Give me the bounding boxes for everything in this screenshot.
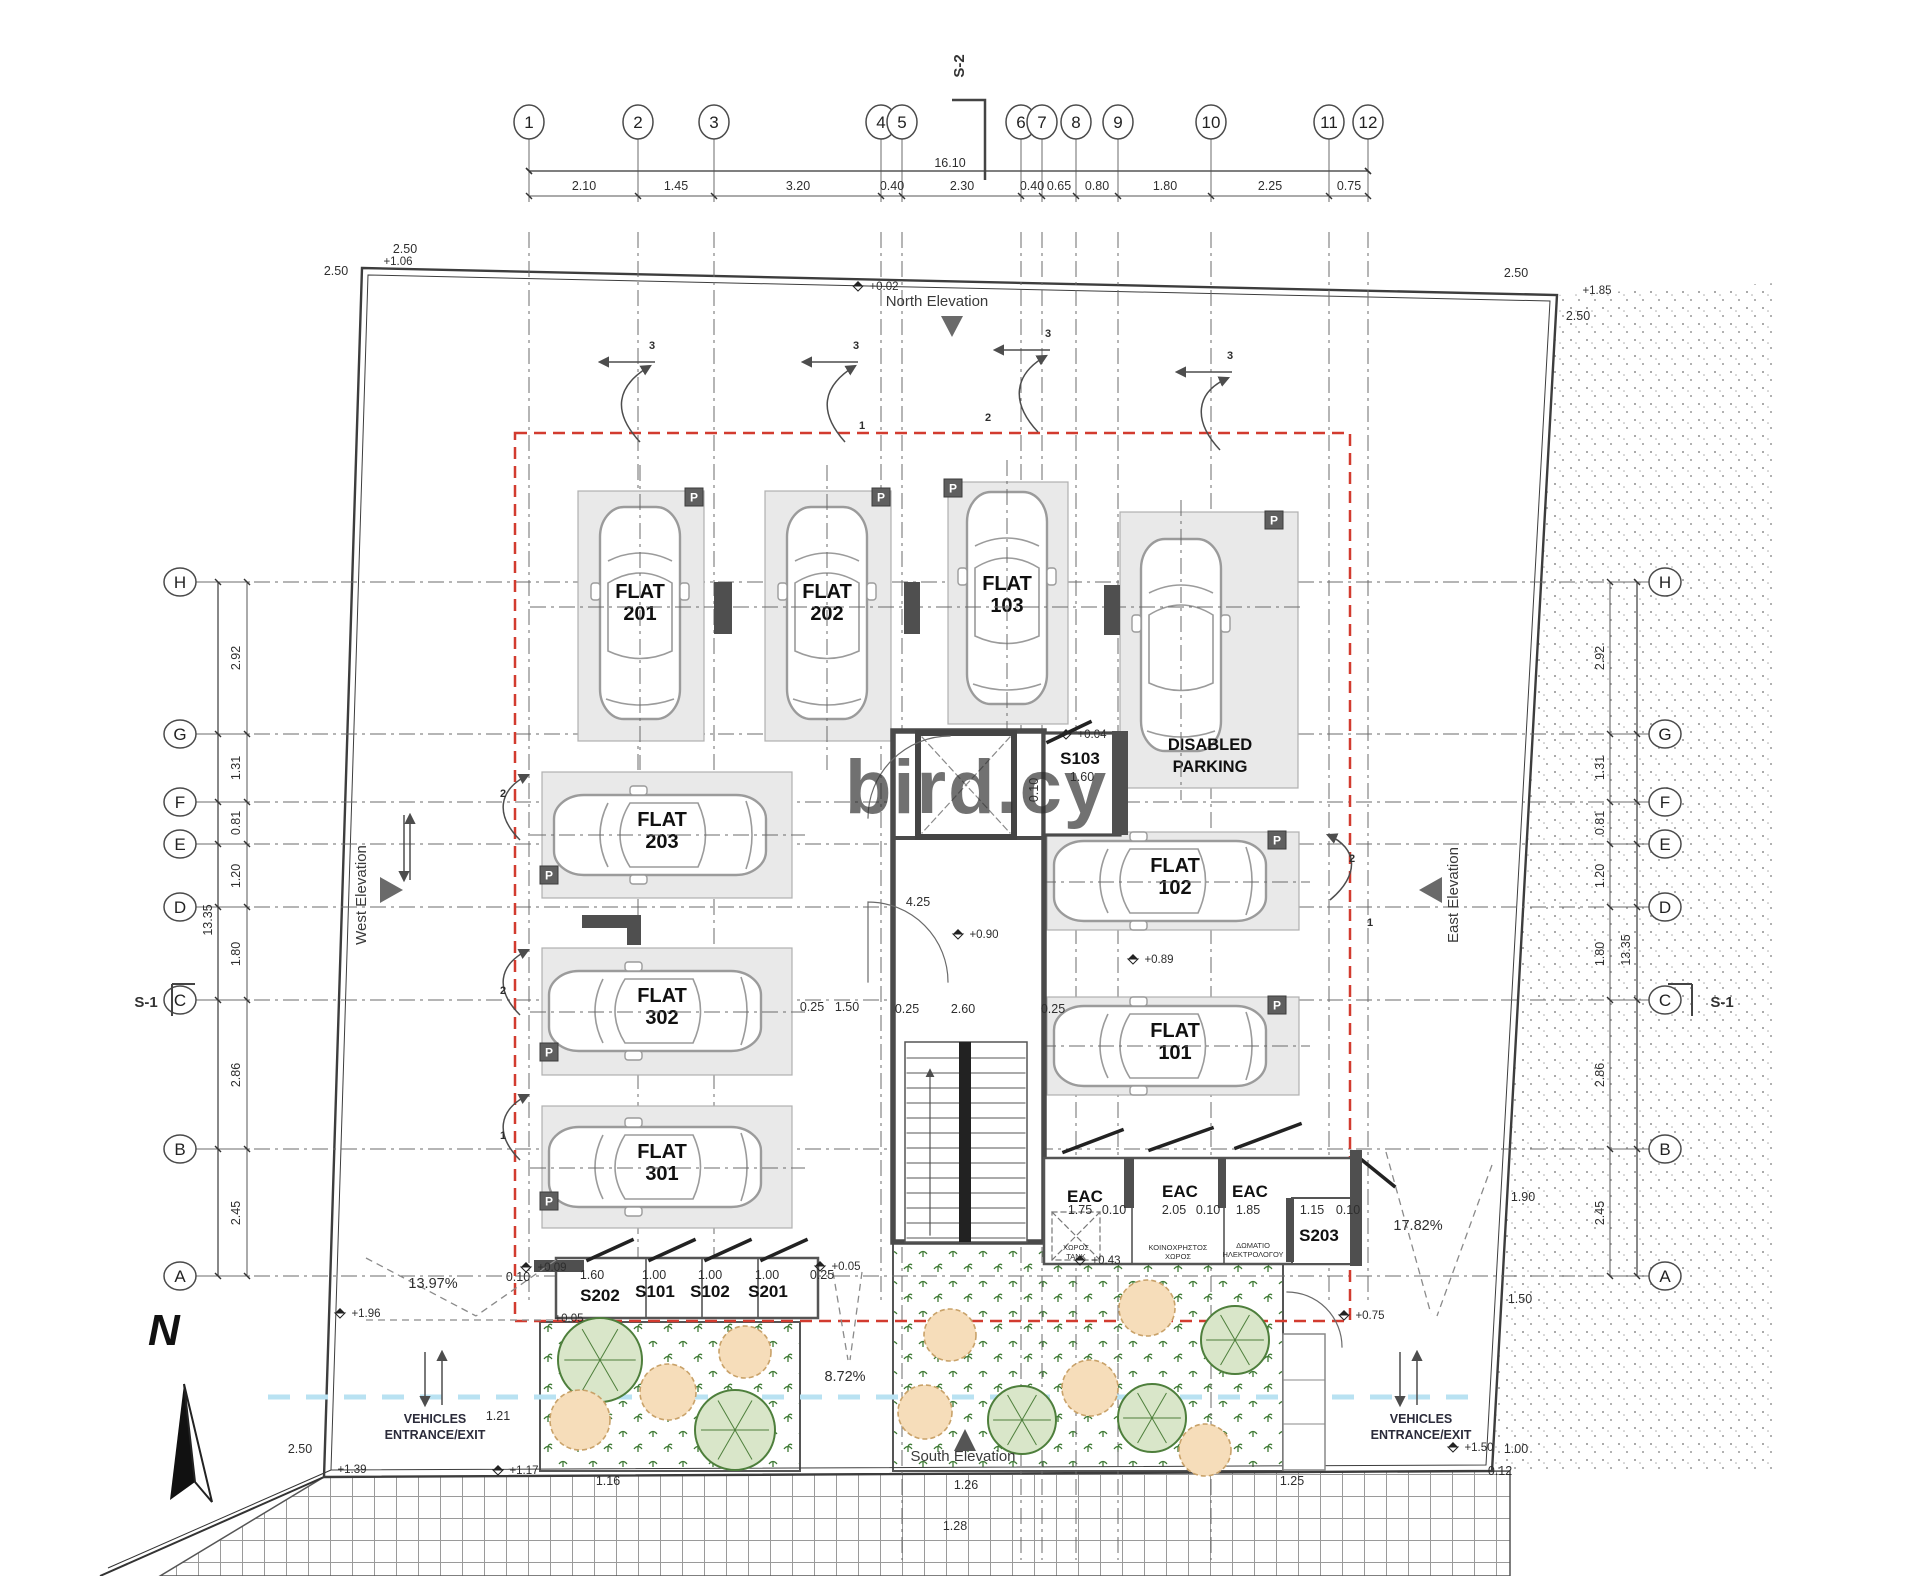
dimension-label: 0.25 [800,1000,824,1014]
level-label: +0.75 [1355,1310,1384,1322]
east-elevation-label: East Elevation [1445,847,1462,943]
path-number: 2 [500,985,506,997]
section-s1-right-label: S-1 [1710,994,1733,1011]
level-label: +0.05 [831,1261,860,1273]
top-total-dim: 16.10 [934,156,965,170]
grid-bubble-col-label-7: 7 [1037,113,1046,132]
stall-flat-301: FLAT301P [540,1106,792,1228]
svg-text:A: A [174,1267,186,1286]
svg-text:E: E [1659,835,1670,854]
dimension-label: 1.15 [1300,1203,1324,1217]
grid-bubble-col-label-6: 6 [1016,113,1025,132]
stipple-ground-texture [1492,283,1776,1472]
level-label: +0.05 [554,1313,583,1325]
left-dim-segment: 2.45 [229,1201,243,1225]
tree-orange-icon [550,1390,610,1450]
right-dim-segment: 2.45 [1593,1201,1607,1225]
svg-text:F: F [1660,793,1670,812]
dimension-label: 1.00 [755,1268,779,1282]
dimension-label: 0.10 [1196,1203,1220,1217]
staircase [905,1042,1027,1242]
tree-green-icon [1118,1384,1186,1452]
level-marker-icon [1128,954,1138,959]
stall-flat-301-label-line1: FLAT [637,1141,687,1163]
stall-disabled-label-line2: PARKING [1173,758,1248,776]
svg-text:G: G [173,725,186,744]
level-label: +0.09 [537,1262,566,1274]
stall-flat-202: FLAT202P [765,488,891,741]
grid-bubble-col-label-4: 4 [876,113,885,132]
grid-bubble-col-label-12: 12 [1359,113,1378,132]
dimension-label: 1.50 [1508,1292,1532,1306]
stall-flat-102-label-line1: FLAT [1150,855,1200,877]
parking-p-glyph: P [949,482,957,496]
level-label: +0.89 [1144,954,1173,966]
right-dim-segment: 1.31 [1593,756,1607,780]
right-dim-segment: 0.81 [1593,811,1607,835]
svg-text:H: H [1659,573,1671,592]
room-sublabel: ΔΩΜΑΤΙΟ [1236,1241,1270,1250]
level-label: +0.04 [1077,729,1107,741]
dimension-label: 0.25 [1041,1002,1065,1016]
path-number: 1 [859,420,865,432]
room-sublabel: ΗΛΕΚΤΡΟΛΟΓΟΥ [1222,1250,1283,1259]
level-marker-icon [335,1308,345,1313]
section-s2-label: S-2 [951,54,968,77]
left-dim-segment: 2.92 [229,646,243,670]
dimension-label: 1.60 [580,1268,604,1282]
room-sublabel: ΤΑΝΚ [1066,1252,1085,1261]
top-dim-segment: 2.10 [572,179,596,193]
tree-orange-icon [640,1364,696,1420]
stall-flat-301-label-line2: 301 [645,1163,678,1185]
tree-green-icon [558,1318,642,1402]
svg-text:C: C [1659,991,1671,1010]
stall-disabled-label-line1: DISABLED [1168,736,1252,754]
section-s1-left-label: S-1 [134,994,157,1011]
grid-bubble-col-label-1: 1 [524,113,533,132]
dimension-label: 1.00 [1504,1442,1528,1456]
parking-p-glyph: P [545,869,553,883]
svg-text:D: D [1659,898,1671,917]
room-sublabel: ΚΟΙΝΟΧΡΗΣΤΟΣ [1149,1243,1208,1252]
grid-bubble-col-label-8: 8 [1071,113,1080,132]
parking-p-glyph: P [1273,834,1281,848]
tree-orange-icon [924,1309,976,1361]
dimension-label: 4.25 [906,895,930,909]
dimension-label: 2.50 [1504,266,1528,280]
slope-label: 8.72% [824,1369,865,1385]
stall-flat-101-label-line1: FLAT [1150,1020,1200,1042]
dimension-label: 2.50 [324,264,348,278]
svg-text:F: F [175,793,185,812]
level-label: +1.06 [383,256,412,268]
stall-flat-101-label-line2: 101 [1158,1042,1191,1064]
path-number: 2 [500,788,506,800]
parking-p-glyph: P [690,491,698,505]
top-dim-segment: 2.30 [950,179,974,193]
left-dim-segment: 1.20 [229,864,243,888]
entrance-right-line1: VEHICLES [1390,1412,1453,1426]
stall-flat-302-label-line2: 302 [645,1007,678,1029]
left-total-dim: 13.35 [201,904,215,935]
top-dim-segment: 1.80 [1153,179,1177,193]
stall-flat-103: FLAT103P [944,479,1068,724]
dimension-label: 0.10 [1102,1203,1126,1217]
path-number: 3 [853,340,859,352]
svg-text:G: G [1658,725,1671,744]
top-dim-segment: 0.40 [1020,179,1044,193]
right-dim-segment: 1.80 [1593,942,1607,966]
svg-text:D: D [174,898,186,917]
slope-label: 13.97% [408,1276,457,1292]
right-total-dim: 13.35 [1619,934,1633,965]
room-sublabel: ΧΩΡΟΣ [1165,1252,1191,1261]
level-marker-icon [1339,1310,1349,1315]
entrance-left-line1: VEHICLES [404,1412,467,1426]
tree-orange-icon [1062,1360,1118,1416]
path-number: 1 [500,1130,506,1142]
level-marker-icon [1448,1442,1458,1447]
level-label: +1.39 [337,1464,366,1476]
right-dim-segment: 2.92 [1593,646,1607,670]
west-elevation-triangle-icon [380,877,403,903]
dimension-label: 2.05 [1162,1203,1186,1217]
dimension-label: 1.26 [954,1478,978,1492]
dimension-label: 2.60 [951,1002,975,1016]
grid-bubble-col-label-9: 9 [1113,113,1122,132]
room-label: S202 [580,1286,620,1305]
stall-disabled: DISABLEDPARKINGP [1120,511,1298,788]
room-label: S102 [690,1282,730,1301]
svg-text:B: B [1659,1140,1670,1159]
room-label: S201 [748,1282,788,1301]
path-number: 3 [649,340,655,352]
dimension-label: 1.21 [486,1409,510,1423]
site-plan-page: 123456789101112HHGGFFEEDDCCBBAA16.102.10… [0,0,1920,1576]
north-elevation-triangle-icon [941,316,963,337]
dimension-label: 0.10 [1336,1203,1360,1217]
parking-p-glyph: P [1270,514,1278,528]
west-elevation-label: West Elevation [353,845,370,945]
tree-orange-icon [898,1385,952,1439]
room-label: S101 [635,1282,675,1301]
tree-green-icon [1201,1306,1269,1374]
site-plan-drawing: 123456789101112HHGGFFEEDDCCBBAA16.102.10… [0,0,1920,1576]
dimension-label: 1.28 [943,1519,967,1533]
left-dim-segment: 0.81 [229,811,243,835]
level-label: +1.17 [509,1465,538,1477]
stall-flat-102-label-line2: 102 [1158,877,1191,899]
dimension-label: 1.00 [642,1268,666,1282]
dimension-label: 0.12 [1488,1464,1512,1478]
grid-bubble-col-label-10: 10 [1202,113,1221,132]
top-dim-segment: 1.45 [664,179,688,193]
dimension-label: 1.25 [1280,1474,1304,1488]
right-dim-segment: 1.20 [1593,864,1607,888]
room-sublabel: ΧΩΡΟΣ [1063,1243,1089,1252]
path-number: 3 [1045,328,1051,340]
tree-orange-icon [1179,1424,1231,1476]
dimension-label: 1.90 [1511,1190,1535,1204]
dimension-label: 1.16 [596,1474,620,1488]
tree-green-icon [988,1386,1056,1454]
parking-p-glyph: P [545,1046,553,1060]
east-elevation-triangle-icon [1419,877,1442,903]
stall-flat-102: FLAT102P [1047,831,1299,930]
entrance-right-line2: ENTRANCE/EXIT [1371,1428,1472,1442]
tree-orange-icon [719,1326,771,1378]
level-label: +0.90 [969,929,998,941]
top-dim-segment: 0.80 [1085,179,1109,193]
top-dim-segment: 0.65 [1047,179,1071,193]
level-marker-icon [493,1465,503,1470]
dimension-label: 2.50 [393,242,417,256]
svg-text:E: E [174,835,185,854]
north-compass: N [148,1306,212,1502]
parking-p-glyph: P [1273,999,1281,1013]
entrance-left-line2: ENTRANCE/EXIT [385,1428,486,1442]
top-dim-segment: 3.20 [786,179,810,193]
dimension-label: 0.25 [895,1002,919,1016]
level-label: +0.43 [1091,1255,1120,1267]
dimension-label: 1.50 [835,1000,859,1014]
tree-green-icon [695,1390,775,1470]
path-number: 2 [985,412,991,424]
left-dim-segment: 2.86 [229,1063,243,1087]
top-dim-segment: 0.75 [1337,179,1361,193]
room-label: EAC [1067,1187,1103,1206]
svg-text:H: H [174,573,186,592]
stall-flat-203-label-line2: 203 [645,831,678,853]
level-label: +1.96 [351,1308,380,1320]
room-label: EAC [1232,1182,1268,1201]
grid-bubble-col-label-2: 2 [633,113,642,132]
parking-p-glyph: P [545,1195,553,1209]
svg-text:C: C [174,991,186,1010]
dimension-label: 1.85 [1236,1203,1260,1217]
grid-bubble-col-label-11: 11 [1320,113,1338,132]
level-label: +1.85 [1582,285,1611,297]
level-label: +0.02 [869,281,898,293]
left-dim-segment: 1.31 [229,756,243,780]
svg-text:A: A [1659,1267,1671,1286]
stall-flat-302-label-line1: FLAT [637,985,687,1007]
path-number: 2 [1349,853,1355,865]
level-marker-icon [853,281,863,286]
level-label: +1.50 [1464,1442,1493,1454]
left-dim-segment: 1.80 [229,942,243,966]
parking-p-glyph: P [877,491,885,505]
top-dim-segment: 0.40 [880,179,904,193]
path-number: 3 [1227,350,1233,362]
slope-label: 17.82% [1393,1218,1442,1234]
planter-strip [1283,1334,1325,1470]
stall-flat-201: FLAT201P [578,488,704,741]
top-dim-segment: 2.25 [1258,179,1282,193]
svg-text:B: B [174,1140,185,1159]
dimension-label: 1.00 [698,1268,722,1282]
north-label: N [148,1306,181,1355]
room-label: EAC [1162,1182,1198,1201]
dimension-label: 2.50 [288,1442,312,1456]
tree-orange-icon [1119,1280,1175,1336]
grid-bubble-col-label-5: 5 [897,113,906,132]
stall-flat-203-label-line1: FLAT [637,809,687,831]
watermark: bird.cy [845,745,1108,830]
right-dim-segment: 2.86 [1593,1063,1607,1087]
grid-bubble-col-label-3: 3 [709,113,718,132]
dimension-label: 2.50 [1566,309,1590,323]
north-elevation-label: North Elevation [886,293,989,310]
path-number: 1 [1367,917,1373,929]
room-label: S203 [1299,1226,1339,1245]
